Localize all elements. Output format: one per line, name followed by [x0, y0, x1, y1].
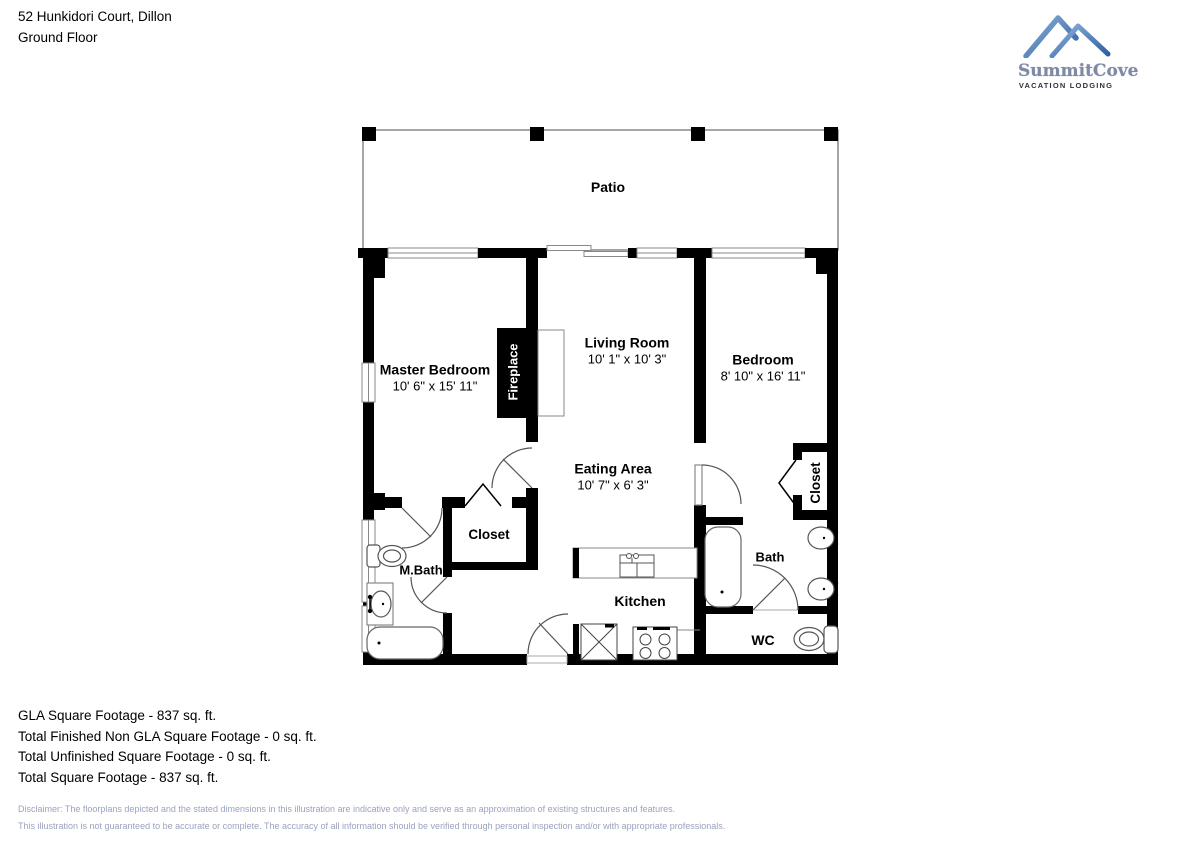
room-label-fireplace: Fireplace — [506, 343, 523, 400]
interior-walls — [363, 250, 838, 660]
door-arc-master — [492, 448, 532, 488]
door-arc-mbath-top — [402, 508, 442, 548]
closet-door-chevron — [465, 484, 501, 506]
room-label-closet: Closet — [468, 526, 509, 544]
gla-line: GLA Square Footage - 837 sq. ft. — [18, 706, 317, 727]
room-label-patio: Patio — [591, 178, 625, 196]
window-icon — [362, 363, 375, 402]
bathtub-icon — [367, 627, 443, 659]
room-label-bath: Bath — [756, 550, 785, 567]
hearth — [538, 330, 564, 416]
disclaimer-line-1: Disclaimer: The floorplans depicted and … — [18, 801, 725, 818]
door-arc-entrance — [528, 614, 568, 654]
unfinished-line: Total Unfinished Square Footage - 0 sq. … — [18, 747, 317, 768]
floorplan-page: 52 Hunkidori Court, Dillon Ground Floor … — [0, 0, 1200, 849]
room-label-master-bedroom: Master Bedroom 10' 6" x 15' 11" — [380, 360, 490, 395]
sliding-door-icon — [547, 246, 628, 257]
door-arc-bedroom — [695, 465, 741, 505]
room-label-kitchen: Kitchen — [614, 592, 665, 610]
room-label-wc: WC — [751, 631, 774, 649]
kitchen-sink-icon — [620, 554, 654, 578]
room-label-closet-bedroom: Closet — [807, 462, 825, 503]
door-arc-mbath-side — [411, 577, 447, 613]
window-icon — [388, 248, 478, 258]
window-icon — [637, 248, 677, 258]
disclaimer-line-2: This illustration is not guaranteed to b… — [18, 818, 725, 835]
window-icon — [712, 248, 805, 258]
non-gla-line: Total Finished Non GLA Square Footage - … — [18, 727, 317, 748]
room-label-bedroom: Bedroom 8' 10" x 16' 11" — [721, 350, 806, 385]
bathroom-sink-icon — [367, 583, 393, 625]
top-wall — [358, 246, 838, 259]
door-arc-bath — [753, 565, 798, 610]
disclaimer: Disclaimer: The floorplans depicted and … — [18, 801, 725, 835]
room-label-eating-area: Eating Area 10' 7" x 6' 3" — [574, 459, 651, 494]
square-footage-summary: GLA Square Footage - 837 sq. ft. Total F… — [18, 706, 317, 788]
bathtub-icon — [705, 527, 741, 607]
fridge-icon — [581, 624, 617, 660]
total-line: Total Square Footage - 837 sq. ft. — [18, 768, 317, 789]
room-label-living-room: Living Room 10' 1" x 10' 3" — [585, 333, 670, 368]
room-label-mbath: M.Bath — [399, 563, 442, 580]
outer-walls — [362, 250, 838, 665]
toilet-icon — [794, 626, 838, 653]
stove-icon — [633, 627, 677, 660]
